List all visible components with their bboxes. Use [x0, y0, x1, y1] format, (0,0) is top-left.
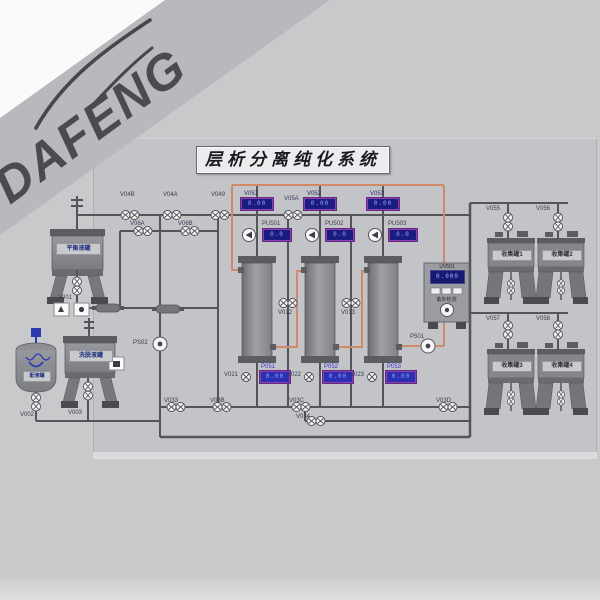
- pressure-display-1[interactable]: 0.00: [260, 371, 290, 383]
- display-tag: V053: [370, 191, 384, 197]
- pump-tag: PU501: [262, 221, 280, 227]
- valve-v021[interactable]: [242, 373, 251, 382]
- tank-label: 收集罐3: [492, 361, 532, 372]
- valve-label: V022: [287, 372, 301, 378]
- tank-label: 收集罐2: [542, 250, 582, 261]
- tank-label: 洗脱液罐: [69, 350, 113, 362]
- pressure-display-3[interactable]: 0.00: [386, 371, 416, 383]
- valve-v057[interactable]: [504, 321, 513, 339]
- sensor-ps02[interactable]: [153, 337, 167, 351]
- pressure-tag: P052: [324, 364, 338, 370]
- pump-label: P501: [410, 334, 424, 340]
- valve-label: V013: [341, 310, 355, 316]
- valve-v023[interactable]: [368, 373, 377, 382]
- mixing-tank: [16, 328, 56, 397]
- valve-label: V03C: [289, 398, 304, 404]
- flow-display-3[interactable]: 0.00: [367, 198, 399, 210]
- pump-pu502[interactable]: [306, 229, 319, 242]
- tank4-drain-valve[interactable]: [557, 391, 564, 405]
- detector-label: 紫外检测: [426, 297, 467, 303]
- valve-label: V04B: [120, 192, 135, 198]
- valve-label: V033: [164, 398, 178, 404]
- valve-label: V03D: [436, 398, 451, 404]
- tank3-drain-valve[interactable]: [507, 391, 514, 405]
- pump-display-2[interactable]: 0.0: [326, 229, 354, 241]
- valve-v001[interactable]: [73, 277, 82, 295]
- valve-v04a[interactable]: [163, 211, 181, 220]
- pressure-tag: P051: [261, 364, 275, 370]
- valve-label: V03B: [210, 398, 225, 404]
- valve-v002[interactable]: [32, 393, 41, 411]
- pump-tag: PU503: [388, 221, 406, 227]
- valve-label: V04A: [163, 192, 178, 198]
- screenshot: 层析分离纯化系统 V051 V052 V053 0.00 0.00 0.00 P…: [0, 0, 600, 600]
- chromatography-column-2: [301, 256, 339, 363]
- valve-label: V05A: [284, 196, 299, 202]
- chromatography-column-3: [364, 256, 402, 363]
- valve-v05a[interactable]: [284, 211, 302, 220]
- valve-label: V058: [536, 316, 550, 322]
- valve-v003[interactable]: [84, 382, 93, 400]
- valve-label: V034: [296, 414, 310, 420]
- chromatography-column-1: [238, 256, 276, 363]
- tank-label: 收集罐4: [542, 361, 582, 372]
- valve-v049[interactable]: [211, 211, 229, 220]
- inline-pump-1[interactable]: [92, 304, 124, 312]
- pump-pu503[interactable]: [369, 229, 382, 242]
- pump-p501[interactable]: [421, 339, 435, 353]
- valve-v058[interactable]: [554, 321, 563, 339]
- valve-label: V012: [278, 310, 292, 316]
- pump-display-3[interactable]: 0.0: [389, 229, 417, 241]
- valve-label: V049: [211, 192, 225, 198]
- valve-label: V056: [536, 206, 550, 212]
- valve-label: V003: [68, 410, 82, 416]
- valve-v055[interactable]: [504, 213, 513, 231]
- pressure-tag: P053: [387, 364, 401, 370]
- pump-display-1[interactable]: 0.0: [263, 229, 291, 241]
- tank1-drain-valve[interactable]: [507, 280, 514, 294]
- valve-v06b[interactable]: [181, 227, 199, 236]
- valve-label: V023: [350, 372, 364, 378]
- valve-label: V055: [486, 206, 500, 212]
- valve-v056[interactable]: [554, 213, 563, 231]
- pump-tag: PU502: [325, 221, 343, 227]
- process-diagram: [0, 0, 600, 600]
- sensor-label: PS02: [133, 340, 148, 346]
- display-tag: V052: [307, 191, 321, 197]
- valve-label: V057: [486, 316, 500, 322]
- valve-label: V021: [224, 372, 238, 378]
- flow-display-2[interactable]: 0.00: [304, 198, 336, 210]
- tank-label: 收集罐1: [492, 250, 532, 261]
- valve-label: V002: [20, 412, 34, 418]
- pump-pu501[interactable]: [243, 229, 256, 242]
- valve-label: V06B: [178, 221, 193, 227]
- valve-v022[interactable]: [305, 373, 314, 382]
- inline-pump-2[interactable]: [152, 305, 184, 313]
- valve-v06a[interactable]: [134, 227, 152, 236]
- display-tag: V051: [244, 191, 258, 197]
- tank2-drain-valve[interactable]: [557, 280, 564, 294]
- pressure-display-2[interactable]: 0.00: [323, 371, 353, 383]
- page-title: 层析分离纯化系统: [196, 146, 390, 174]
- tank-label: 平衡液罐: [56, 243, 101, 255]
- valve-label: V06A: [130, 221, 145, 227]
- tank-label: 配液罐: [23, 371, 51, 382]
- valve-label: V001: [58, 295, 72, 301]
- valve-v04b[interactable]: [121, 211, 139, 220]
- flow-display-1[interactable]: 0.00: [241, 198, 273, 210]
- detector-display[interactable]: 0.000: [430, 270, 465, 284]
